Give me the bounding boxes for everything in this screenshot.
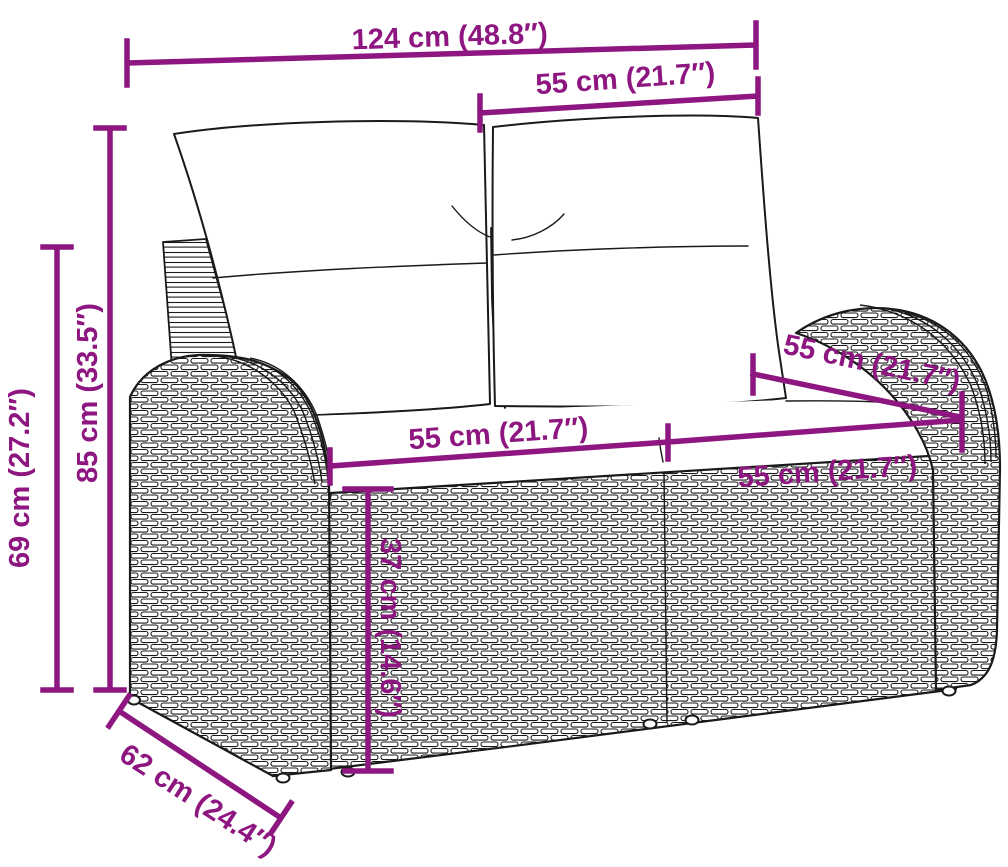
dim-seat-height-label: 37 cm (14.6″) [374,538,406,718]
dim-overall-height: 85 cm (33.5″) [72,128,124,690]
back-cushion-right [493,116,786,407]
armrest-left [130,355,331,776]
dim-armrest-height: 69 cm (27.2″) [4,247,71,690]
dim-armrest-height-label: 69 cm (27.2″) [4,388,36,568]
dim-overall-width-label: 124 cm (48.8″) [351,18,548,57]
dim-overall-height-label: 85 cm (33.5″) [72,303,104,483]
diagram-canvas: 124 cm (48.8″) 55 cm (21.7″) 85 cm (33.5… [0,0,1008,867]
dimension-diagram: 124 cm (48.8″) 55 cm (21.7″) 85 cm (33.5… [0,0,1008,867]
dim-backrest-width-label: 55 cm (21.7″) [535,57,717,101]
dim-armrest-height-line [43,247,71,690]
